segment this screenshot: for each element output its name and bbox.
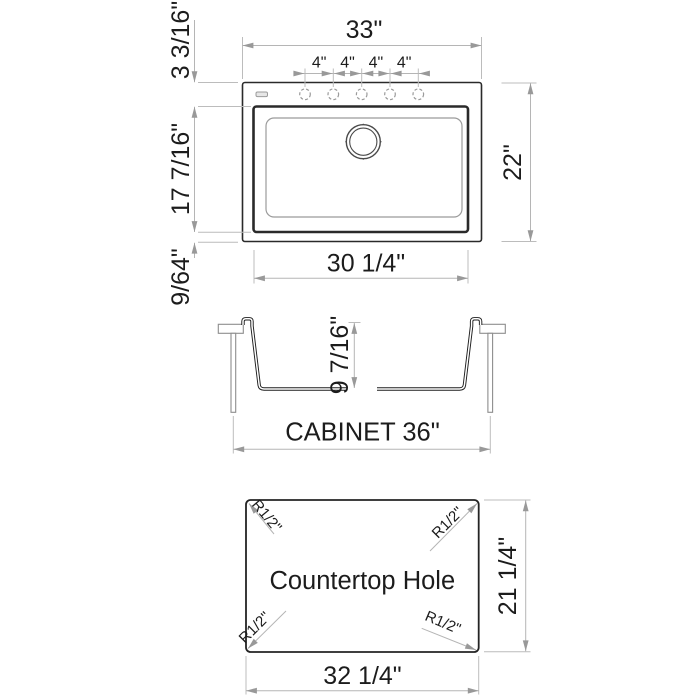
dim-cabinet: CABINET 36" <box>233 416 490 454</box>
cabinet-wall-right <box>488 333 493 412</box>
sink-spec-drawing: 33" 4" 4" 4" 4" <box>0 0 700 700</box>
dim-label-21-1-4: 21 1/4" <box>494 537 522 615</box>
dim-label-9-7-16: 9 7/16" <box>326 316 354 394</box>
dim-label-3-3-16: 3 3/16" <box>167 1 195 79</box>
sink-spec-sheet: 33" 4" 4" 4" 4" <box>0 0 700 700</box>
faucet-hole-icon <box>385 89 396 100</box>
cabinet-label: CABINET 36" <box>285 419 440 447</box>
dim-bowl-depth: 9 7/16" <box>326 316 361 394</box>
cabinet-wall-left <box>231 333 236 412</box>
dim-label-4in: 4" <box>369 55 384 72</box>
faucet-hole-icon <box>413 89 424 100</box>
countertop-right <box>480 324 506 333</box>
dim-left-chain: 3 3/16" 17 7/16" 9/64" <box>167 1 251 306</box>
drain <box>345 124 382 161</box>
cutout-view: Countertop Hole R1/2" R1/2" R1/2" R1/2" … <box>236 496 531 694</box>
dim-label-4in: 4" <box>340 55 355 72</box>
dim-cutout-width: 32 1/4" <box>246 656 479 695</box>
faucet-holes <box>300 89 424 100</box>
dim-bowl-width: 30 1/4" <box>254 250 468 284</box>
bowl-profile <box>243 319 481 389</box>
dim-label-33: 33" <box>346 16 383 44</box>
dim-cutout-depth: 21 1/4" <box>484 500 531 652</box>
dim-label-9-64: 9/64" <box>167 248 195 306</box>
faucet-hole-icon <box>300 89 311 100</box>
dim-label-30-1-4: 30 1/4" <box>327 250 405 278</box>
cutout-title: Countertop Hole <box>269 567 455 595</box>
faucet-hole-icon <box>356 89 367 100</box>
dim-label-32-1-4: 32 1/4" <box>323 662 401 690</box>
dim-overall-depth: 22" <box>499 83 537 242</box>
drain-outer-circle <box>346 125 380 159</box>
section-view: 9 7/16" CABINET 36" <box>218 316 505 454</box>
bowl-profile-right-inner <box>377 319 481 389</box>
top-view: 33" 4" 4" 4" 4" <box>167 1 537 306</box>
dim-label-22: 22" <box>499 144 527 181</box>
brand-plate <box>256 92 268 97</box>
countertop-left <box>218 324 243 333</box>
dim-label-17-7-16: 17 7/16" <box>167 123 195 215</box>
dim-label-4in: 4" <box>397 55 412 72</box>
dim-label-4in: 4" <box>312 55 327 72</box>
faucet-hole-icon <box>328 89 339 100</box>
